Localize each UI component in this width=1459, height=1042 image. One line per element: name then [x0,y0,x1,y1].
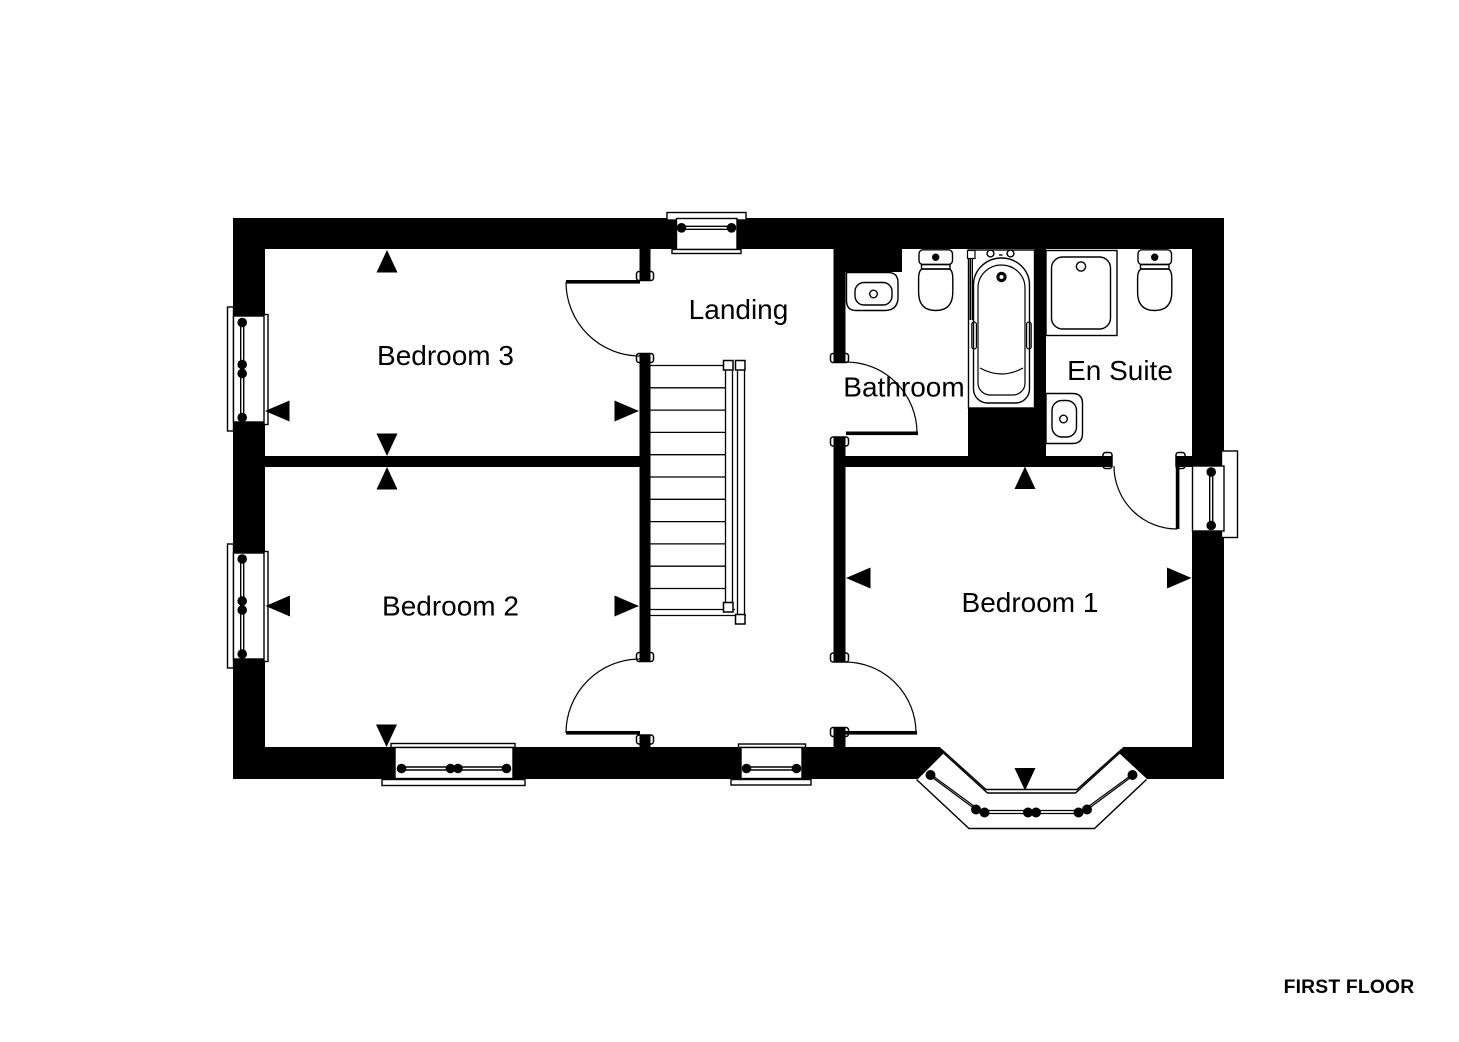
svg-text:Bathroom: Bathroom [843,372,964,403]
svg-text:Bedroom 3: Bedroom 3 [377,340,514,371]
svg-text:Landing: Landing [689,294,789,325]
svg-text:Bedroom 1: Bedroom 1 [962,587,1099,618]
svg-text:En Suite: En Suite [1067,355,1173,386]
svg-text:Bedroom 2: Bedroom 2 [382,591,519,622]
svg-text:FIRST FLOOR: FIRST FLOOR [1284,977,1415,998]
